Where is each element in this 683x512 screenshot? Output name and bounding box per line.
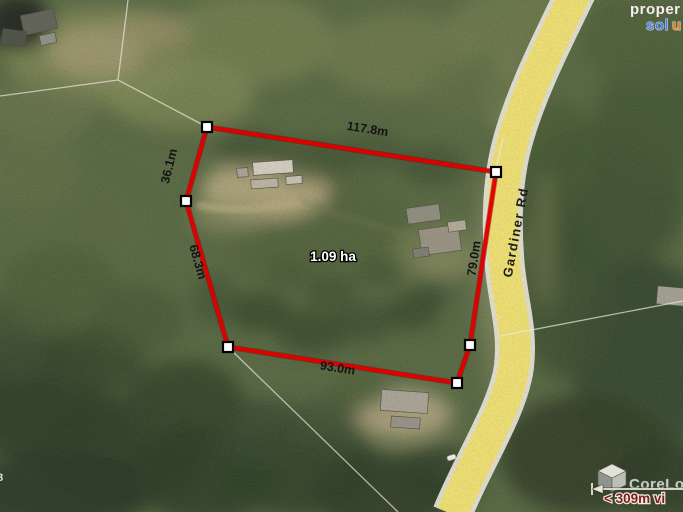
area-label: 1.09 ha (310, 249, 356, 264)
edge-label: 8 (0, 472, 3, 484)
aerial-map[interactable]: 117.8m 36.1m 68.3m 79.0m 93.0m 1.09 ha G… (0, 0, 683, 512)
scale-text: < 309m vi (604, 491, 665, 506)
boundary-vertex[interactable] (223, 342, 233, 352)
boundary-vertex[interactable] (452, 378, 462, 388)
boundary-vertex[interactable] (181, 196, 191, 206)
boundary-vertex[interactable] (491, 167, 501, 177)
watermark-line1: proper (630, 1, 681, 18)
watermark-line2-blue: sol (646, 17, 669, 34)
watermark-line2-orange: u (672, 17, 682, 34)
boundary-vertex[interactable] (465, 340, 475, 350)
boundary-vertex[interactable] (202, 122, 212, 132)
